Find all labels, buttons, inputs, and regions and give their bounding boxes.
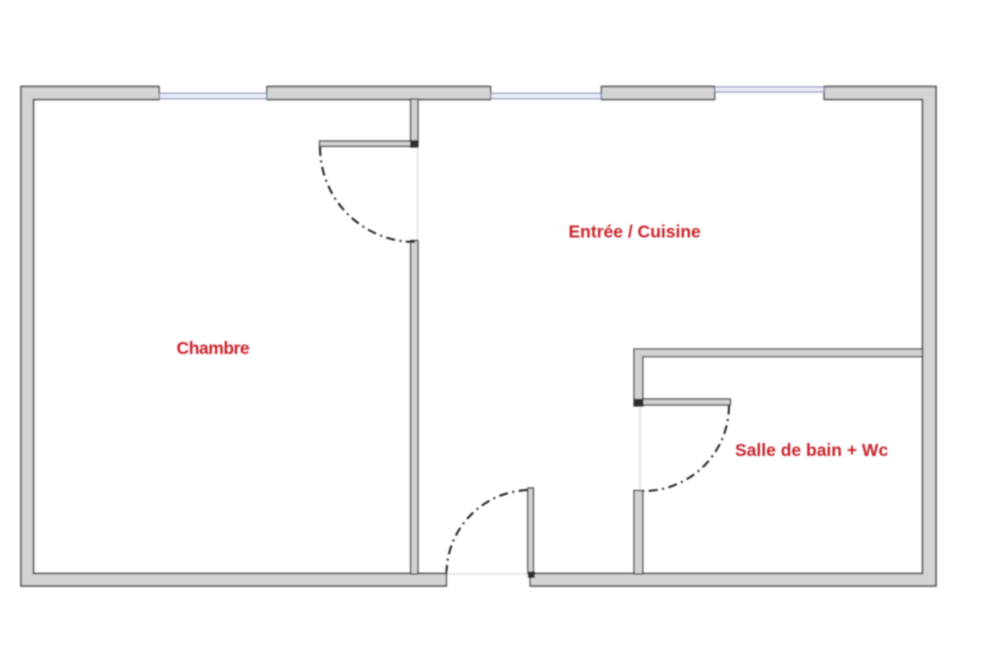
svg-text:Salle de bain + Wc: Salle de bain + Wc — [735, 440, 888, 460]
svg-text:Chambre: Chambre — [177, 338, 250, 358]
svg-text:Entrée / Cuisine: Entrée / Cuisine — [569, 222, 702, 242]
